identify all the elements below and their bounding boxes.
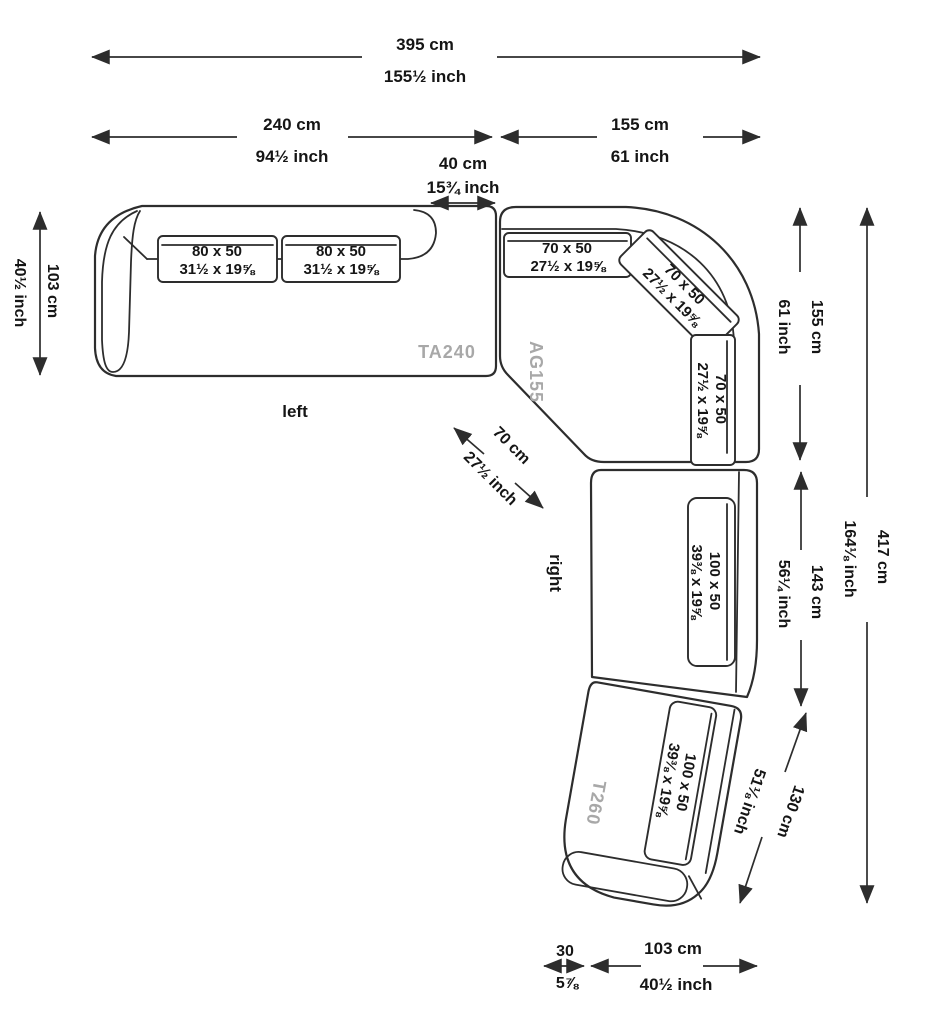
dim-corner-height-inch: 61 inch xyxy=(775,299,792,354)
dim-left-width-cm: 240 cm xyxy=(263,115,321,134)
dim-seat-depth-line-upper xyxy=(454,428,484,454)
ta240-armrest xyxy=(102,211,140,372)
dim-total-height-cm: 417 cm xyxy=(874,530,891,584)
ag155-cushion-side-size-cm: 70 x 50 xyxy=(712,374,729,424)
right-section-cushion-size-inch: 39⅜ x 19⅝ xyxy=(688,544,705,621)
dim-middle-height-inch: 56¼ inch xyxy=(775,560,792,628)
dimension-diagonal-seat-depth: 70 cm 27½ inch xyxy=(454,424,543,509)
ag155-cushion-side-size-inch: 27½ x 19⅝ xyxy=(694,362,711,439)
ta240-cushion-2-size-inch: 31½ x 19⅝ xyxy=(303,261,380,278)
module-ag155: 70 x 50 27½ x 19⅝ 70 x 50 27½ x 19⅝ 70 x… xyxy=(500,207,759,465)
dim-seat-depth-cm: 70 cm xyxy=(489,424,533,468)
ta240-cushion-1-size-inch: 31½ x 19⅝ xyxy=(179,261,256,278)
dimension-total-height: 417 cm 164⅛ inch xyxy=(841,208,891,903)
sofa-dimension-diagram: 80 x 50 31½ x 19⅝ 80 x 50 31½ x 19⅝ TA24… xyxy=(0,0,938,1024)
dim-bottom-offset-cm: 30 xyxy=(556,943,574,960)
dimension-left-section-width: 240 cm 94½ inch xyxy=(92,115,492,166)
dim-bottom-depth-cm: 103 cm xyxy=(644,939,702,958)
dim-corner-width-inch: 61 inch xyxy=(611,147,670,166)
ta240-module-code: TA240 xyxy=(418,342,476,362)
module-ta240: 80 x 50 31½ x 19⅝ 80 x 50 31½ x 19⅝ TA24… xyxy=(95,206,496,421)
sofa-dimension-diagram-page: 80 x 50 31½ x 19⅝ 80 x 50 31½ x 19⅝ TA24… xyxy=(0,0,938,1024)
ta240-armrest-seam xyxy=(124,237,147,259)
dim-corner-width-cm: 155 cm xyxy=(611,115,669,134)
dim-left-width-inch: 94½ inch xyxy=(256,147,329,166)
ta240-cushion-1-size-cm: 80 x 50 xyxy=(192,243,242,260)
dimension-total-width: 395 cm 155½ inch xyxy=(92,35,760,86)
dim-middle-height-cm: 143 cm xyxy=(808,565,825,619)
dim-chaise-line-lower xyxy=(740,837,762,903)
dim-chaise-cm: 130 cm xyxy=(773,783,807,840)
dim-corner-height-cm: 155 cm xyxy=(808,300,825,354)
ta240-orientation-label: left xyxy=(282,402,308,421)
t260-module-code: T260 xyxy=(582,779,610,827)
dimension-bottom-depth: 103 cm 40½ inch xyxy=(591,939,757,994)
dim-connector-inch: 15¾ inch xyxy=(427,178,500,197)
dimension-left-depth: 103 cm 40½ inch xyxy=(11,212,61,375)
dim-left-depth-inch: 40½ inch xyxy=(11,259,28,327)
dim-bottom-depth-inch: 40½ inch xyxy=(640,975,713,994)
right-section-backrest xyxy=(736,472,739,692)
right-section-cushion-size-cm: 100 x 50 xyxy=(706,552,723,610)
dimension-connector-width: 40 cm 15¾ inch xyxy=(427,154,500,203)
dim-total-width-inch: 155½ inch xyxy=(384,67,466,86)
ag155-module-code: AG155 xyxy=(526,341,546,403)
module-t260: 100 x 50 39⅜ x 19⅝ T260 xyxy=(554,681,743,914)
dim-chaise-line-upper xyxy=(785,713,806,772)
ag155-cushion-top-size-inch: 27½ x 19⅝ xyxy=(530,258,607,275)
ag155-cushion-top-size-cm: 70 x 50 xyxy=(542,240,592,257)
dimension-corner-section-height: 155 cm 61 inch xyxy=(775,208,825,460)
dimension-corner-section-width: 155 cm 61 inch xyxy=(501,115,760,166)
ta240-cushion-2-size-cm: 80 x 50 xyxy=(316,243,366,260)
t260-orientation-label: right xyxy=(546,554,565,592)
dimension-bottom-offset: 30 5⅞ xyxy=(544,943,584,992)
dim-bottom-offset-inch: 5⅞ xyxy=(556,975,580,992)
dimension-chaise-length: 130 cm 51⅛ inch xyxy=(730,713,807,903)
dim-connector-cm: 40 cm xyxy=(439,154,487,173)
module-right-section: 100 x 50 39⅜ x 19⅝ right xyxy=(546,470,757,697)
dimension-middle-section-height: 143 cm 56¼ inch xyxy=(775,472,825,706)
dim-left-depth-cm: 103 cm xyxy=(44,264,61,318)
dim-total-width-cm: 395 cm xyxy=(396,35,454,54)
dim-total-height-inch: 164⅛ inch xyxy=(841,520,858,597)
dim-chaise-inch: 51⅛ inch xyxy=(730,766,768,836)
ag155-cushion-side-group: 70 x 50 27½ x 19⅝ xyxy=(691,335,735,465)
